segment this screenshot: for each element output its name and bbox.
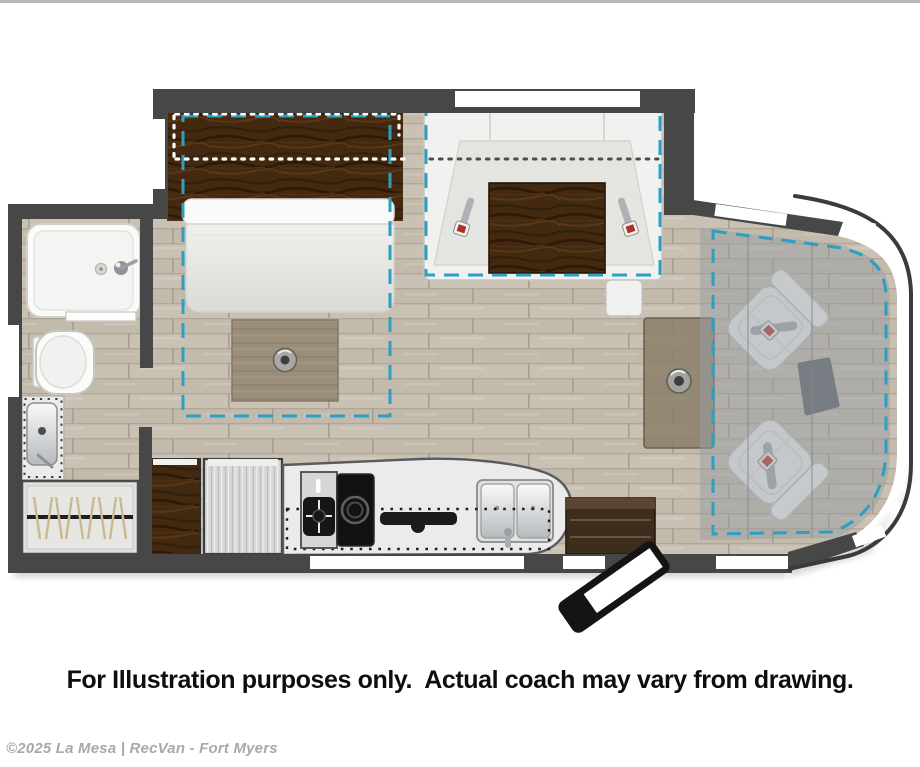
cab-bunk-overlay [700, 228, 890, 540]
toilet [33, 331, 94, 394]
bed-mattress [183, 199, 394, 312]
window-rear-left [6, 325, 19, 397]
wall-jog [664, 89, 694, 215]
kitchen-counter [283, 459, 571, 555]
dinette-ledge [606, 280, 642, 316]
wardrobe [22, 481, 138, 554]
stove [301, 472, 374, 548]
copyright-text: ©2025 La Mesa | RecVan - Fort Myers [6, 740, 278, 757]
shower-door [66, 312, 136, 321]
entry-door-opening [563, 556, 605, 569]
refrigerator [204, 459, 282, 554]
bathroom-sink [22, 396, 64, 480]
shower [27, 224, 140, 317]
dinette-table [489, 183, 605, 273]
bedroom-table [232, 320, 338, 401]
wall-hallway-stub [139, 427, 152, 555]
wall-bathroom-inner [140, 218, 153, 368]
kitchen-cabinet [150, 459, 200, 554]
window-bottom-galley [310, 556, 524, 569]
bed-pillow-band [183, 199, 394, 225]
window-bottom-cab [716, 556, 788, 569]
floorplan-image [0, 3, 920, 643]
wall-bathroom-top [8, 204, 158, 219]
cab [700, 228, 890, 540]
floorplan-svg [0, 3, 920, 643]
illustration-disclaimer: For Illustration purposes only. Actual c… [0, 666, 920, 695]
window-bedroom-left [153, 119, 165, 189]
window-top [455, 91, 640, 107]
floorplan-page: For Illustration purposes only. Actual c… [0, 0, 920, 767]
kitchen-sink [477, 480, 553, 548]
